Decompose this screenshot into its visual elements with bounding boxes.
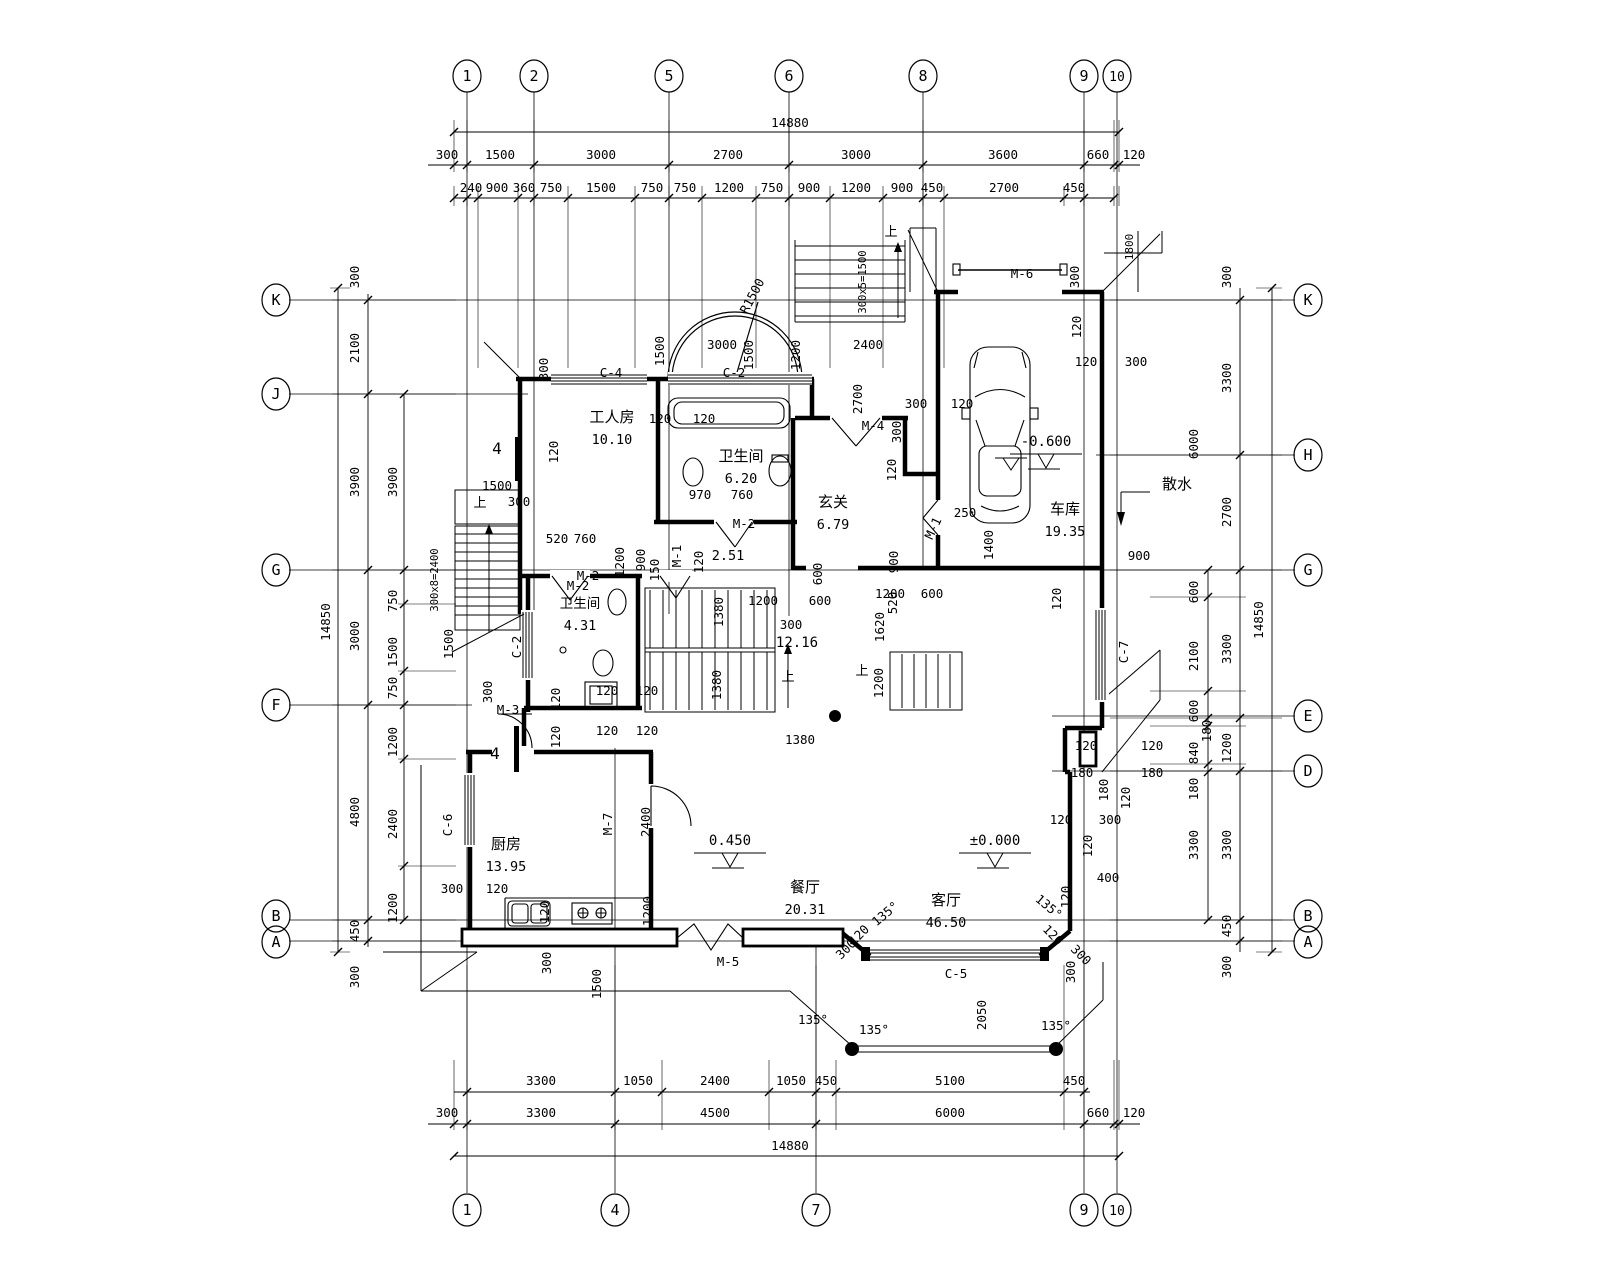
dim-label: 1050	[776, 1073, 806, 1088]
apron-leader	[1121, 492, 1150, 512]
floor-drain	[560, 647, 566, 653]
window-tag: C-2	[509, 636, 524, 659]
room-area: 10.10	[592, 432, 633, 448]
elevation-triangle	[722, 853, 738, 867]
dim-label: 360	[513, 180, 536, 195]
floorplan-drawing: 1488030015003000270030003600660120240900…	[0, 0, 1600, 1280]
grid-bubble-label: H	[1303, 446, 1312, 464]
room-area: 4.31	[564, 618, 597, 634]
dim-label: 120	[1080, 835, 1095, 858]
dim-label: 120	[636, 683, 659, 698]
wall-kitchen-south	[462, 929, 677, 946]
entry-steps-up-arrow	[894, 242, 902, 252]
grid-bubble-label: D	[1303, 762, 1312, 780]
dim-label: 120	[693, 411, 716, 426]
dim-label: 1050	[623, 1073, 653, 1088]
grid-bubble-label: 1	[462, 1201, 471, 1219]
dim-label: 760	[574, 531, 597, 546]
grid-bubble-bottom-4: 4	[601, 1194, 629, 1226]
dim-label: 600	[1186, 581, 1201, 604]
dim-label: 450	[921, 180, 944, 195]
window-tag: C-4	[600, 365, 623, 380]
dim-label: 120	[636, 723, 659, 738]
dim-label: 120	[1118, 787, 1133, 810]
dim-label: 450	[1063, 1073, 1086, 1088]
car-windshield	[976, 420, 1024, 446]
dim-label: 135°	[1041, 1018, 1071, 1033]
direction-label: 上	[473, 496, 486, 511]
dim-label: 300	[539, 952, 554, 975]
car-hood-line	[975, 390, 1025, 398]
dim-label: 1200	[748, 593, 778, 608]
dim-label: 2400	[638, 807, 653, 837]
dim-label: 300	[1067, 266, 1082, 289]
dim-label: 1500	[652, 336, 667, 366]
dim-label: 660	[1087, 1105, 1110, 1120]
dim-label: 1500	[385, 637, 400, 667]
dim-label: 450	[1219, 915, 1234, 938]
grid-bubble-left-K: K	[262, 284, 290, 316]
dim-label: 1620	[872, 612, 887, 642]
dim-label: 3300	[526, 1073, 556, 1088]
dim-label: 300	[436, 147, 459, 162]
room-name: 玄关	[818, 493, 848, 511]
window-C5	[869, 950, 1040, 960]
dim-label: 2700	[989, 180, 1019, 195]
dim-label: 300x8=2400	[429, 548, 441, 611]
grid-bubble-bottom-9: 9	[1070, 1194, 1098, 1226]
window-C5-post-right	[1040, 947, 1049, 961]
room-name: 卫生间	[560, 596, 601, 612]
grid-bubble-label: 10	[1109, 1204, 1125, 1219]
dim-label: 3300	[1219, 830, 1234, 860]
dim-label: 970	[689, 487, 712, 502]
grid-bubble-label: 5	[664, 67, 673, 85]
dim-label: 300	[1219, 266, 1234, 289]
dim-label: 520	[546, 531, 569, 546]
floorplan-canvas: 1488030015003000270030003600660120240900…	[0, 0, 1600, 1280]
grid-bubble-label: 7	[811, 1201, 820, 1219]
roof-hip-nw	[484, 342, 520, 378]
dim-label: 900	[1128, 548, 1151, 563]
stove-burner-cross	[578, 908, 606, 918]
bathtub-inner	[674, 402, 784, 424]
room-name: 餐厅	[790, 878, 820, 896]
dim-label: 4500	[700, 1105, 730, 1120]
sink-bath1	[683, 458, 703, 486]
window-tag: C-7	[1116, 641, 1131, 664]
dim-label: 1500	[441, 629, 456, 659]
dim-label: 900	[891, 180, 914, 195]
dim-label: 120	[596, 683, 619, 698]
dim-label: 120	[1050, 812, 1073, 827]
dim-label: 750	[641, 180, 664, 195]
door-tag: M-1	[921, 515, 944, 542]
dim-label: 300	[441, 881, 464, 896]
room-area: 6.20	[725, 471, 758, 487]
dim-label: 120	[1058, 886, 1073, 909]
column-dot-terrace-left	[845, 1042, 859, 1056]
dim-label: 180	[1141, 765, 1164, 780]
dim-label: 1200	[385, 893, 400, 923]
dim-label: 120	[546, 441, 561, 464]
dim-label: 2050	[974, 1000, 989, 1030]
door-tag: M-4	[862, 418, 885, 433]
door-M5	[677, 924, 743, 950]
grid-bubble-left-J: J	[262, 378, 290, 410]
room-area: 46.50	[926, 915, 967, 931]
dim-label: 750	[761, 180, 784, 195]
dim-label: 300	[780, 617, 803, 632]
dim-label: 1200	[612, 547, 627, 577]
room-area: 19.35	[1045, 524, 1086, 540]
area-value: 2.51	[712, 548, 745, 564]
dim-label: 1380	[709, 670, 724, 700]
dim-label: 250	[954, 505, 977, 520]
dim-label: 300	[480, 681, 495, 704]
dim-label: 600	[810, 563, 825, 586]
dim-label: 300	[889, 421, 904, 444]
grid-bubble-bottom-10: 10	[1103, 1194, 1131, 1226]
dim-label: 900	[633, 549, 648, 572]
grid-bubble-label: B	[1303, 907, 1312, 925]
dim-label: 300	[508, 494, 531, 509]
grid-bubble-label: B	[271, 907, 280, 925]
dim-label: 760	[731, 487, 754, 502]
grid-bubble-top-10: 10	[1103, 60, 1131, 92]
door-tag: M-3	[497, 702, 520, 717]
grid-bubble-right-A: A	[1294, 926, 1322, 958]
section-label: 4	[492, 439, 502, 458]
dim-label: 1200	[714, 180, 744, 195]
grid-bubble-left-A: A	[262, 926, 290, 958]
dim-label: 120	[1141, 738, 1164, 753]
grid-bubble-label: 8	[918, 67, 927, 85]
direction-label: 上	[884, 225, 897, 240]
entry-steps	[795, 240, 905, 322]
grid-bubble-right-E: E	[1294, 700, 1322, 732]
dim-label: 1200	[1219, 733, 1234, 763]
dim-label: 120	[1040, 922, 1067, 949]
dim-label: 3300	[1219, 634, 1234, 664]
grid-bubble-label: 9	[1079, 67, 1088, 85]
grid-bubble-top-9: 9	[1070, 60, 1098, 92]
dim-label: 14880	[771, 1138, 809, 1153]
grid-bubble-top-6: 6	[775, 60, 803, 92]
dim-label: 300	[1219, 956, 1234, 979]
main-stair-rail	[645, 648, 775, 652]
door-tag: M-7	[600, 813, 615, 836]
dim-label: 120	[596, 723, 619, 738]
dim-label: 900	[798, 180, 821, 195]
dim-label: 120	[486, 881, 509, 896]
direction-label: 上	[781, 670, 794, 685]
car-mirror-right	[1030, 408, 1038, 419]
dim-label: 750	[385, 590, 400, 613]
grid-bubble-top-2: 2	[520, 60, 548, 92]
dim-label: 180	[1071, 765, 1094, 780]
dim-label: 120	[884, 459, 899, 482]
dim-label: 14850	[1251, 601, 1266, 639]
dim-label: 1500	[482, 478, 512, 493]
dim-label: 750	[540, 180, 563, 195]
dim-label: 660	[1087, 147, 1110, 162]
dim-label: 3000	[707, 337, 737, 352]
elevation-label: 0.450	[709, 833, 751, 849]
dim-label: 300	[1099, 812, 1122, 827]
grid-bubble-label: A	[271, 933, 280, 951]
dim-label: 180	[1199, 720, 1214, 743]
grid-bubble-label: K	[271, 291, 280, 309]
dim-label: 1500	[589, 969, 604, 999]
dim-label: 2700	[713, 147, 743, 162]
dim-label: 120	[548, 688, 563, 711]
area-value: 12.16	[776, 635, 818, 651]
window-tag: C-6	[440, 814, 455, 837]
dim-label: 3900	[385, 467, 400, 497]
column-dot-hall	[829, 710, 841, 722]
dim-label: 400	[1097, 870, 1120, 885]
dim-label: 1380	[711, 597, 726, 627]
dim-label: 1200	[788, 340, 803, 370]
dim-label: 1200	[841, 180, 871, 195]
dim-label: 135°	[798, 1012, 828, 1027]
dim-label: 150	[647, 559, 662, 582]
dim-label: 300	[536, 358, 551, 381]
elevation-label: ±0.000	[970, 833, 1021, 849]
room-area: 20.31	[785, 902, 826, 918]
car-headlights	[974, 352, 1026, 368]
grid-bubble-label: G	[271, 561, 280, 579]
door-tag: M-2	[733, 516, 756, 531]
dim-label: 120	[537, 901, 552, 924]
column-dot-terrace-right	[1049, 1042, 1063, 1056]
dim-label: 2100	[347, 333, 362, 363]
dim-label: 300	[1125, 354, 1148, 369]
dim-label: 120	[951, 396, 974, 411]
text-label: 散水	[1162, 475, 1192, 493]
dim-label: 450	[815, 1073, 838, 1088]
section-label: 4	[490, 744, 500, 763]
grid-bubble-right-H: H	[1294, 439, 1322, 471]
grid-bubble-label: F	[271, 696, 280, 714]
grid-bubble-bottom-1: 1	[453, 1194, 481, 1226]
dim-label: 1500	[586, 180, 616, 195]
dim-label: 120	[1123, 1105, 1146, 1120]
grid-bubble-right-G: G	[1294, 554, 1322, 586]
dim-label: 135°	[869, 898, 902, 929]
grid-bubble-label: 9	[1079, 1201, 1088, 1219]
dim-label: 6000	[1186, 429, 1201, 459]
toilet-bath2	[593, 650, 613, 676]
dim-label: 1400	[981, 530, 996, 560]
dim-label: 750	[385, 677, 400, 700]
door-tag: M-6	[1011, 266, 1034, 281]
dim-label: 5100	[935, 1073, 965, 1088]
dim-label: 600	[921, 586, 944, 601]
section-mark-4-upper	[515, 437, 520, 481]
dim-label: 14850	[318, 603, 333, 641]
dim-label: 3000	[586, 147, 616, 162]
dim-label: 14880	[771, 115, 809, 130]
garage-elev-triangle	[995, 458, 1027, 470]
dim-label: 120	[1075, 354, 1098, 369]
grid-bubble-left-G: G	[262, 554, 290, 586]
dim-label: 2400	[385, 809, 400, 839]
sink-bath2	[608, 589, 626, 615]
dim-label: 1200	[640, 896, 655, 926]
grid-bubble-bottom-7: 7	[802, 1194, 830, 1226]
dim-label: 300	[347, 266, 362, 289]
grid-bubble-left-B: B	[262, 900, 290, 932]
elevation-triangle	[1038, 454, 1054, 468]
grid-bubble-right-D: D	[1294, 755, 1322, 787]
wall-dining-south	[743, 929, 843, 946]
door-tag: M-5	[717, 954, 740, 969]
elevation-triangle	[987, 853, 1003, 867]
dim-label: 2400	[700, 1073, 730, 1088]
dim-label: 300x5=1500	[857, 250, 869, 313]
dim-label: 180	[1186, 778, 1201, 801]
roof-hip-e	[1102, 650, 1160, 772]
dim-label: 180	[1096, 779, 1111, 802]
grid-bubble-label: 10	[1109, 70, 1125, 85]
dim-label: 4800	[347, 797, 362, 827]
dim-label: 600	[1186, 700, 1201, 723]
dim-label: 120	[1123, 147, 1146, 162]
dim-label: 450	[1063, 180, 1086, 195]
small-stair-treads	[902, 654, 950, 708]
dim-label: 120	[649, 411, 672, 426]
grid-bubble-right-K: K	[1294, 284, 1322, 316]
dim-label: 900	[886, 551, 901, 574]
dim-label: 1800	[1123, 234, 1136, 261]
room-area: 6.79	[817, 517, 850, 533]
dim-label: 1200	[385, 727, 400, 757]
dim-label: 135°	[859, 1022, 889, 1037]
grid-bubble-top-1: 1	[453, 60, 481, 92]
grid-bubble-label: 1	[462, 67, 471, 85]
door-tag: M-1	[669, 545, 684, 568]
grid-bubble-label: K	[1303, 291, 1312, 309]
grid-bubble-label: A	[1303, 933, 1312, 951]
extension-lines	[330, 120, 1282, 1130]
dim-label: 750	[674, 180, 697, 195]
dim-label: 300	[436, 1105, 459, 1120]
dim-label: 2700	[850, 384, 865, 414]
grid-bubble-label: 4	[610, 1201, 619, 1219]
dim-label: 3000	[347, 621, 362, 651]
dim-label: 840	[1186, 742, 1201, 765]
dim-label: 1200	[871, 668, 886, 698]
grid-bubble-top-5: 5	[655, 60, 683, 92]
dim-label: 3900	[347, 467, 362, 497]
room-name: 客厅	[931, 891, 961, 909]
dim-label: 120	[548, 726, 563, 749]
dim-label: 1380	[785, 732, 815, 747]
dim-label: 3300	[1219, 363, 1234, 393]
dim-label: 1500	[485, 147, 515, 162]
door-M6-gap	[958, 285, 1062, 298]
room-name: 厨房	[491, 835, 521, 853]
dim-label: 6000	[935, 1105, 965, 1120]
section-mark-4-lower	[514, 726, 519, 772]
dim-label: 600	[809, 593, 832, 608]
dim-label: 300	[905, 396, 928, 411]
grid-bubble-left-F: F	[262, 689, 290, 721]
dim-label: 3600	[988, 147, 1018, 162]
grid-bubble-label: E	[1303, 707, 1312, 725]
dim-label: 120	[1069, 316, 1084, 339]
dim-label: 240	[460, 180, 483, 195]
room-name: 车库	[1050, 500, 1080, 518]
grid-bubble-label: G	[1303, 561, 1312, 579]
west-stair-outline	[455, 526, 520, 630]
window-tag: C-5	[945, 966, 968, 981]
dim-label: 3000	[841, 147, 871, 162]
wall-foyer-east	[905, 418, 938, 474]
grid-bubble-label: 2	[529, 67, 538, 85]
dim-label: 1500	[741, 340, 756, 370]
room-name: 卫生间	[718, 447, 763, 465]
elevation-label: -0.600	[1021, 434, 1072, 450]
door-tag: M-2	[577, 568, 600, 583]
dim-label: 300	[1063, 961, 1078, 984]
dim-label: R1500	[737, 276, 768, 316]
dim-label: 3300	[1186, 830, 1201, 860]
dim-label: 3300	[526, 1105, 556, 1120]
dim-label: 2100	[1186, 641, 1201, 671]
car-rear-window	[981, 506, 1019, 511]
grid-bubble-top-8: 8	[909, 60, 937, 92]
apron-arrow	[1117, 512, 1125, 526]
dim-label: 450	[347, 920, 362, 943]
window-C5-post-left	[861, 947, 870, 961]
grid-bubble-label: J	[271, 385, 280, 403]
grid-bubble-right-B: B	[1294, 900, 1322, 932]
grid-bubble-label: 6	[784, 67, 793, 85]
dim-label: 120	[691, 551, 706, 574]
dim-label: 2700	[1219, 497, 1234, 527]
direction-label: 上	[855, 664, 868, 679]
west-stair-treads	[455, 534, 520, 615]
dim-label: 120	[1075, 738, 1098, 753]
dim-label: 120	[1049, 588, 1064, 611]
dim-label: 300	[347, 966, 362, 989]
dim-label: 1200	[875, 586, 905, 601]
room-name: 工人房	[589, 408, 634, 426]
dim-label: 2400	[853, 337, 883, 352]
west-stair-rail	[452, 526, 524, 652]
room-area: 13.95	[486, 859, 527, 875]
dim-label: 900	[486, 180, 509, 195]
